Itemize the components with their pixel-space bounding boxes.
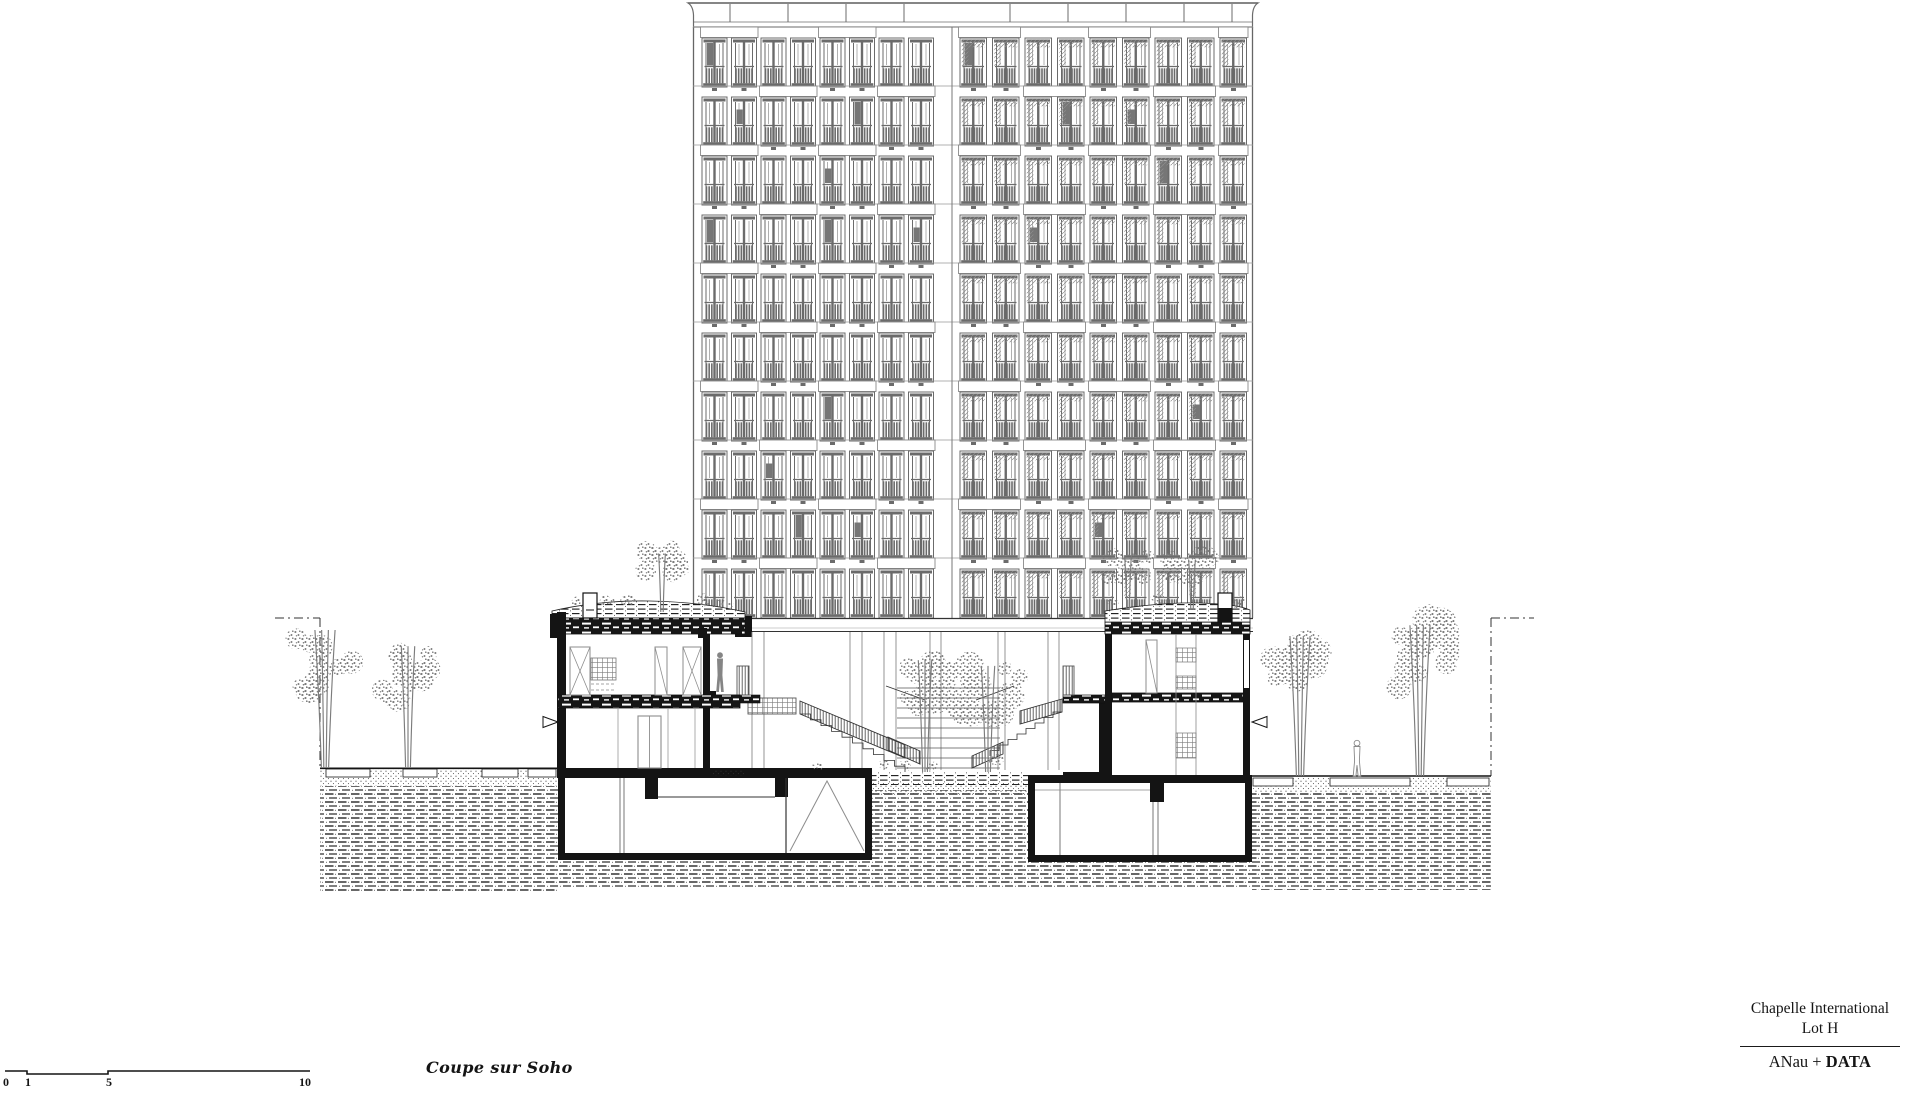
project-lot: Lot H (1738, 1019, 1902, 1039)
scale-bar-label-5: 5 (106, 1075, 112, 1090)
left-duplex-section (543, 601, 745, 770)
firm-name-bold: DATA (1826, 1052, 1872, 1071)
scale-bar-label-1: 1 (25, 1075, 31, 1090)
drawing-caption: Coupe sur Soho (426, 1058, 573, 1077)
firm-name: ANau + DATA (1738, 1052, 1902, 1072)
section-drawing (0, 0, 1920, 1094)
project-name: Chapelle International (1738, 999, 1902, 1019)
architectural-section-sheet: 0 1 5 10 Coupe sur Soho Chapelle Interna… (0, 0, 1920, 1094)
basements (557, 768, 1252, 888)
right-building-section (1063, 612, 1267, 779)
title-block-divider (1740, 1046, 1900, 1047)
scale-bar-label-0: 0 (3, 1075, 9, 1090)
title-block: Chapelle International Lot H ANau + DATA (1738, 999, 1902, 1072)
tower-facade (688, 3, 1258, 637)
scale-bar-label-10: 10 (299, 1075, 311, 1090)
scale-bar (5, 1071, 310, 1074)
